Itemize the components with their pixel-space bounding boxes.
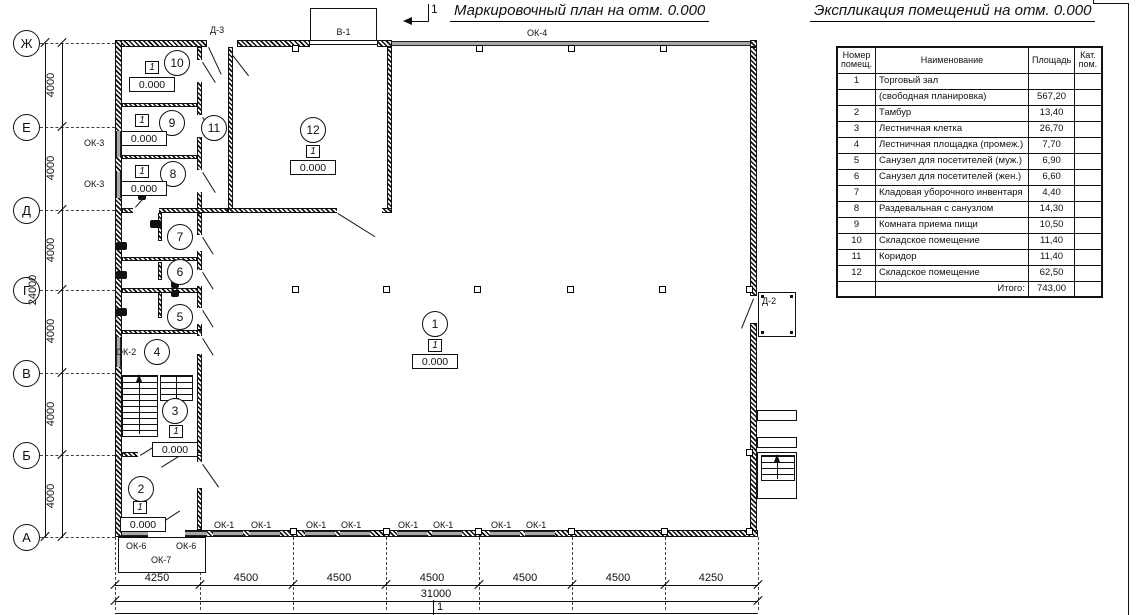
table-row: 6Санузел для посетителей (жен.)6,60 — [837, 169, 1102, 185]
cell-cat — [1075, 265, 1102, 281]
window-ok6 — [185, 531, 207, 536]
column — [383, 528, 390, 535]
cell-area: 4,40 — [1028, 185, 1074, 201]
cell-name: Торговый зал — [875, 73, 1028, 89]
wall-room12 — [387, 47, 392, 213]
column — [292, 45, 299, 52]
column — [475, 528, 482, 535]
table-total-row: Итого: 743,00 — [837, 281, 1102, 297]
cell-area: 62,50 — [1028, 265, 1074, 281]
level-mark: 0.000 — [121, 131, 167, 146]
room-bubble-10: 10 — [164, 50, 190, 76]
window-ok1 — [397, 531, 427, 536]
cell-area: 567,20 — [1028, 89, 1074, 105]
cell-cat — [1075, 169, 1102, 185]
cell-area — [1028, 73, 1074, 89]
table-row: 12Складское помещение62,50 — [837, 265, 1102, 281]
dim-label-31000: 31000 — [416, 588, 456, 600]
door-label-d3: Д-3 — [210, 25, 224, 35]
cell-area: 10,50 — [1028, 217, 1074, 233]
cell-name: Складское помещение — [875, 233, 1028, 249]
axis-bubble: А — [13, 524, 40, 551]
cell-num: 11 — [837, 249, 875, 265]
axis-line — [40, 537, 115, 538]
table-row: 8Раздевальная с санузлом14,30 — [837, 201, 1102, 217]
cell-num: 4 — [837, 137, 875, 153]
cell-area: 11,40 — [1028, 233, 1074, 249]
table-header-row: Номер помещ. Наименование Площадь Кат. п… — [837, 47, 1102, 73]
room-type-mark: 1 — [169, 425, 183, 438]
bottom-section-mark-number: 1 — [437, 601, 443, 613]
sink-fixture — [116, 242, 127, 250]
door-leaf — [202, 272, 213, 289]
dim-label: 4250 — [691, 572, 731, 584]
wall — [122, 155, 197, 159]
room-bubble-11: 11 — [201, 115, 227, 141]
wall — [377, 40, 392, 47]
dimension-line — [45, 43, 46, 537]
cell-name: Лестничная площадка (промеж.) — [875, 137, 1028, 153]
cell-name: Санузел для посетителей (муж.) — [875, 153, 1028, 169]
cell-num: 5 — [837, 153, 875, 169]
door-opening — [197, 60, 202, 82]
porch-dot — [790, 331, 793, 334]
window-label-ok1: ОК-1 — [251, 520, 271, 530]
bottom-section-mark-line — [433, 600, 434, 615]
window-ok1 — [340, 531, 370, 536]
cell-num — [837, 89, 875, 105]
porch-dot — [790, 295, 793, 298]
door-leaf — [337, 213, 375, 237]
section-mark-arrowhead — [403, 17, 412, 25]
table-row: 7Кладовая уборочного инвентаря4,40 — [837, 185, 1102, 201]
dim-label-4000: 4000 — [45, 466, 57, 526]
window-label-ok1: ОК-1 — [214, 520, 234, 530]
table-row: 3Лестничная клетка26,70 — [837, 121, 1102, 137]
frame-line — [1093, 0, 1094, 4]
window-ok1 — [490, 531, 520, 536]
room-type-mark: 1 — [133, 501, 147, 514]
dim-label: 4500 — [226, 572, 266, 584]
column — [746, 528, 753, 535]
table-row: 1Торговый зал — [837, 73, 1102, 89]
axis-bubble: Б — [13, 442, 40, 469]
cell-num — [837, 281, 875, 297]
cell-name: Кладовая уборочного инвентаря — [875, 185, 1028, 201]
door-leaf — [202, 237, 213, 254]
level-mark: 0.000 — [152, 442, 198, 457]
wall-room12 — [228, 47, 233, 213]
window-label-ok1: ОК-1 — [433, 520, 453, 530]
table-row: 5Санузел для посетителей (муж.)6,90 — [837, 153, 1102, 169]
column — [476, 45, 483, 52]
column — [659, 286, 666, 293]
cell-name: Складское помещение — [875, 265, 1028, 281]
axis-bubble: Ж — [13, 30, 40, 57]
dim-label: 4500 — [412, 572, 452, 584]
wall — [158, 262, 162, 280]
door-opening — [337, 208, 382, 213]
window-label-ok2: ОК-2 — [116, 347, 136, 357]
door-opening — [197, 170, 202, 192]
cell-cat — [1075, 249, 1102, 265]
wall — [750, 323, 757, 537]
cell-cat — [1075, 121, 1102, 137]
window-label-ok1: ОК-1 — [306, 520, 326, 530]
room-bubble-2: 2 — [128, 476, 154, 502]
dim-label: 4500 — [505, 572, 545, 584]
door-label-d2: Д-2 — [762, 296, 776, 306]
column — [292, 286, 299, 293]
table-row: 2Тамбур13,40 — [837, 105, 1102, 121]
axis-line — [40, 210, 115, 211]
room-bubble-5: 5 — [167, 304, 193, 330]
room-type-mark: 1 — [145, 61, 159, 74]
window-ok1 — [432, 531, 462, 536]
window-ok1 — [525, 531, 555, 536]
section-mark-line — [428, 4, 429, 22]
dim-label-4000: 4000 — [45, 138, 57, 198]
stair-arrowhead — [774, 454, 780, 462]
window-label-ok1: ОК-1 — [526, 520, 546, 530]
table-row: (свободная планировка)567,20 — [837, 89, 1102, 105]
frame-line — [1128, 3, 1129, 615]
cell-num: 3 — [837, 121, 875, 137]
door-leaf — [232, 55, 249, 76]
cell-cat — [1075, 89, 1102, 105]
level-mark: 0.000 — [290, 160, 336, 175]
room-bubble-12: 12 — [300, 117, 326, 143]
room-bubble-4: 4 — [144, 339, 170, 365]
cell-cat — [1075, 217, 1102, 233]
wall — [750, 47, 757, 296]
room-type-mark: 1 — [135, 114, 149, 127]
window-label-ok3: ОК-3 — [84, 138, 104, 148]
dim-label: 4500 — [319, 572, 359, 584]
table-row: 10Складское помещение11,40 — [837, 233, 1102, 249]
room-type-mark: 1 — [428, 339, 442, 352]
window-ok1 — [213, 531, 243, 536]
cell-area: 6,90 — [1028, 153, 1074, 169]
wall — [122, 330, 202, 334]
cell-name: (свободная планировка) — [875, 89, 1028, 105]
table-row: 4Лестничная площадка (промеж.)7,70 — [837, 137, 1102, 153]
wall — [237, 40, 310, 47]
cell-num: 1 — [837, 73, 875, 89]
axis-line — [386, 537, 387, 610]
cell-area: 7,70 — [1028, 137, 1074, 153]
room-schedule-table: Номер помещ. Наименование Площадь Кат. п… — [836, 46, 1103, 298]
cell-name: Лестничная клетка — [875, 121, 1028, 137]
dimension-line — [115, 613, 758, 614]
axis-line — [40, 373, 115, 374]
level-mark: 0.000 — [129, 77, 175, 92]
toilet-fixture — [116, 271, 127, 279]
axis-line — [40, 43, 115, 44]
gate-threshold-line — [310, 44, 377, 45]
cell-num: 10 — [837, 233, 875, 249]
plan-title: Маркировочный план на отм. 0.000 — [450, 2, 709, 22]
room-bubble-7: 7 — [167, 224, 193, 250]
cell-name: Раздевальная с санузлом — [875, 201, 1028, 217]
cell-cat — [1075, 201, 1102, 217]
axis-line — [572, 537, 573, 610]
door-leaf — [202, 62, 216, 83]
frame-line — [1093, 3, 1129, 4]
toilet-fixture — [150, 220, 161, 228]
column — [746, 286, 753, 293]
window-label-ok1: ОК-1 — [398, 520, 418, 530]
column — [383, 286, 390, 293]
dim-label-4000: 4000 — [45, 384, 57, 444]
window-ok1 — [305, 531, 335, 536]
section-mark-number: 1 — [431, 2, 438, 16]
stair-arrow — [139, 380, 140, 434]
drawing-sheet: 1 Маркировочный план на отм. 0.000 Экспл… — [0, 0, 1137, 615]
column — [661, 528, 668, 535]
column — [567, 286, 574, 293]
door-opening — [197, 462, 202, 488]
cell-area: 11,40 — [1028, 249, 1074, 265]
cell-num: 7 — [837, 185, 875, 201]
stair-arrow — [176, 377, 177, 399]
cell-num: 12 — [837, 265, 875, 281]
window-label-ok1: ОК-1 — [341, 520, 361, 530]
cell-num: 9 — [837, 217, 875, 233]
cell-cat — [1075, 153, 1102, 169]
cell-area: 14,30 — [1028, 201, 1074, 217]
axis-line — [40, 455, 115, 456]
door-opening — [133, 208, 159, 213]
cell-name: Санузел для посетителей (жен.) — [875, 169, 1028, 185]
table-row: 9Комната приема пищи10,50 — [837, 217, 1102, 233]
door-leaf — [202, 464, 219, 488]
window-label-ok7: ОК-7 — [151, 555, 171, 565]
cell-name: Тамбур — [875, 105, 1028, 121]
axis-line — [40, 127, 115, 128]
cell-cat — [1075, 73, 1102, 89]
stair-flight-up — [122, 375, 158, 437]
wall — [158, 292, 162, 318]
wall — [115, 40, 122, 537]
level-mark: 0.000 — [120, 517, 166, 532]
level-mark: 0.000 — [412, 354, 458, 369]
axis-line — [293, 537, 294, 610]
axis-bubble: В — [13, 360, 40, 387]
header-category: Кат. пом. — [1075, 47, 1102, 73]
window-label-ok6: ОК-6 — [126, 541, 146, 551]
axis-bubble: Е — [13, 114, 40, 141]
axis-line — [665, 537, 666, 610]
window-ok1 — [250, 531, 280, 536]
column — [290, 528, 297, 535]
wall — [115, 40, 207, 47]
axis-line — [40, 290, 115, 291]
dim-label-4000: 4000 — [45, 301, 57, 361]
door-opening — [197, 336, 202, 354]
window-label-ok1: ОК-1 — [491, 520, 511, 530]
total-value: 743,00 — [1028, 281, 1074, 297]
door-leaf — [202, 172, 216, 193]
level-mark: 0.000 — [121, 181, 167, 196]
toilet-fixture — [171, 290, 179, 297]
toilet-fixture — [116, 308, 127, 316]
column — [568, 528, 575, 535]
door-leaf — [202, 310, 213, 327]
cell-name: Коридор — [875, 249, 1028, 265]
wall — [122, 103, 197, 107]
cell-num: 8 — [837, 201, 875, 217]
room-type-mark: 1 — [135, 165, 149, 178]
room-bubble-3: 3 — [162, 398, 188, 424]
stair-arrow — [777, 459, 778, 479]
column — [746, 449, 753, 456]
header-room-number: Номер помещ. — [837, 47, 875, 73]
cell-name: Комната приема пищи — [875, 217, 1028, 233]
room-bubble-1: 1 — [422, 311, 448, 337]
cell-cat — [1075, 185, 1102, 201]
porch-dot — [761, 331, 764, 334]
column — [568, 45, 575, 52]
dim-label-24000: 24000 — [27, 260, 39, 320]
window-label-ok3: ОК-3 — [84, 179, 104, 189]
cell-num: 2 — [837, 105, 875, 121]
window-label-ok4: ОК-4 — [527, 28, 547, 38]
cell-area: 13,40 — [1028, 105, 1074, 121]
header-room-name: Наименование — [875, 47, 1028, 73]
column — [660, 45, 667, 52]
dim-label: 4500 — [598, 572, 638, 584]
room-type-mark: 1 — [306, 145, 320, 158]
room-bubble-6: 6 — [167, 259, 193, 285]
schedule-title: Экспликация помещений на отм. 0.000 — [810, 2, 1095, 22]
dim-label-4000: 4000 — [45, 55, 57, 115]
door-leaf — [202, 338, 213, 355]
table-row: 11Коридор11,40 — [837, 249, 1102, 265]
dim-label-4000: 4000 — [45, 220, 57, 280]
dim-label: 4250 — [137, 572, 177, 584]
cell-num: 6 — [837, 169, 875, 185]
wall — [750, 40, 757, 47]
cell-cat — [1075, 281, 1102, 297]
header-area: Площадь — [1028, 47, 1074, 73]
cell-cat — [1075, 233, 1102, 249]
gate-v1-label: В-1 — [310, 27, 377, 37]
loading-dock-ramp — [757, 437, 797, 448]
cell-cat — [1075, 137, 1102, 153]
loading-dock-ramp — [757, 410, 797, 421]
door-leaf-d3 — [208, 47, 222, 75]
column — [474, 286, 481, 293]
total-label: Итого: — [875, 281, 1028, 297]
cell-area: 6,60 — [1028, 169, 1074, 185]
cell-cat — [1075, 105, 1102, 121]
wall — [122, 288, 202, 293]
axis-bubble: Д — [13, 197, 40, 224]
axis-line — [479, 537, 480, 610]
cell-area: 26,70 — [1028, 121, 1074, 137]
window-label-ok6: ОК-6 — [176, 541, 196, 551]
stair-arrowhead — [136, 374, 142, 382]
